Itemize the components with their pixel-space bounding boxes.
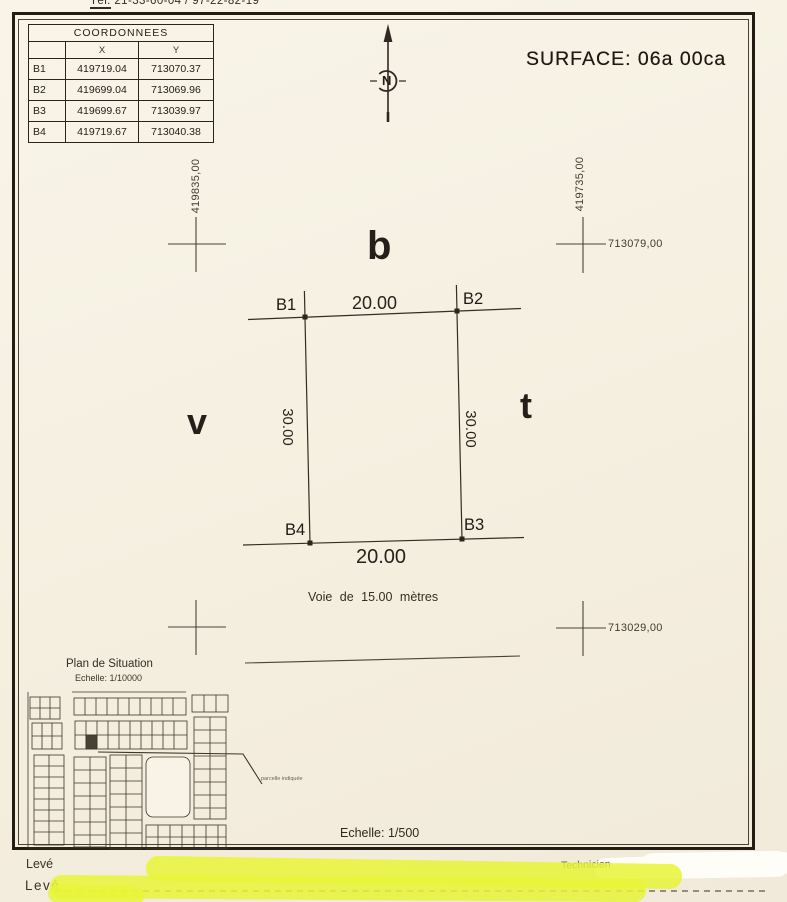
point-id: B3 xyxy=(29,101,66,122)
column-header-y: Y xyxy=(139,42,214,59)
corner-label-b2: B2 xyxy=(463,290,483,309)
column-header-x: X xyxy=(66,42,139,59)
north-letter: N xyxy=(382,73,391,88)
map-block xyxy=(146,825,226,849)
coordinates-table: COORDONNEES X Y B1 419719.04 713070.37 B… xyxy=(28,24,214,143)
point-y: 713040.38 xyxy=(139,122,214,143)
stray-letter-b: b xyxy=(367,226,391,266)
situation-plan-scale: Echelle: 1/10000 xyxy=(75,673,142,683)
dimension-top: 20.00 xyxy=(352,293,397,314)
point-y: 713069.96 xyxy=(139,80,214,101)
road-label: Voie de 15.00 mètres xyxy=(308,590,438,604)
corner-label-b4: B4 xyxy=(285,521,305,540)
road-line xyxy=(245,656,520,663)
map-block xyxy=(192,695,228,712)
highlighter-redaction xyxy=(48,884,145,902)
dimension-bottom: 20.00 xyxy=(356,546,406,569)
map-block xyxy=(32,723,62,749)
corner-label-b3: B3 xyxy=(464,516,484,535)
map-block xyxy=(194,717,226,819)
scanned-survey-document: Tél: 21-33-60-04 / 97-22-82-19 SURFACE: … xyxy=(0,0,787,902)
point-id: B1 xyxy=(29,59,66,80)
point-x: 419699.67 xyxy=(66,101,139,122)
phone-line: Tél: 21-33-60-04 / 97-22-82-19 xyxy=(90,0,259,7)
point-y: 713070.37 xyxy=(139,59,214,80)
table-row: B4 419719.67 713040.38 xyxy=(29,122,214,143)
indicated-parcel xyxy=(86,735,97,749)
main-scale-label: Echelle: 1/500 xyxy=(340,826,419,840)
point-id: B4 xyxy=(29,122,66,143)
surveyor-note-line1: Levé xyxy=(26,857,53,871)
map-block xyxy=(75,721,187,749)
dimension-right: 30.00 xyxy=(463,394,479,464)
stray-letter-v: v xyxy=(187,404,207,440)
table-row: B3 419699.67 713039.97 xyxy=(29,101,214,122)
point-id: B2 xyxy=(29,80,66,101)
map-block xyxy=(34,755,64,845)
map-block xyxy=(110,755,142,849)
grid-easting-right: 419735,00 xyxy=(574,146,588,222)
map-block xyxy=(74,757,106,847)
coordinates-table-corner-cell xyxy=(29,42,66,59)
table-row: B2 419699.04 713069.96 xyxy=(29,80,214,101)
parcel-corner-points xyxy=(303,309,465,546)
phone-number: 21-33-60-04 / 97-22-82-19 xyxy=(114,0,259,7)
coordinates-table-title: COORDONNEES xyxy=(29,25,214,42)
point-x: 419719.67 xyxy=(66,122,139,143)
grid-cross-top-right xyxy=(556,217,606,273)
point-x: 419699.04 xyxy=(66,80,139,101)
map-block xyxy=(30,697,60,719)
surface-label: SURFACE: 06a 00ca xyxy=(526,48,726,71)
phone-label: Tél: xyxy=(90,0,111,9)
indicated-parcel-note: parcelle indiquée xyxy=(261,776,303,782)
map-open-area xyxy=(146,757,190,817)
corner-label-b1: B1 xyxy=(276,296,296,315)
grid-easting-left: 419835,00 xyxy=(190,148,204,224)
table-row: B1 419719.04 713070.37 xyxy=(29,59,214,80)
grid-cross-bottom-left xyxy=(168,600,226,655)
grid-cross-bottom-right xyxy=(556,601,606,656)
grid-northing-top: 713079,00 xyxy=(608,238,663,250)
map-block xyxy=(74,698,186,715)
grid-cross-top-left xyxy=(168,217,226,272)
point-y: 713039.97 xyxy=(139,101,214,122)
dimension-left: 30.00 xyxy=(280,392,296,462)
situation-map xyxy=(26,686,286,852)
grid-northing-bottom: 713029,00 xyxy=(608,622,663,634)
stray-letter-t: t xyxy=(520,388,532,424)
situation-plan-title: Plan de Situation xyxy=(66,658,153,670)
point-x: 419719.04 xyxy=(66,59,139,80)
